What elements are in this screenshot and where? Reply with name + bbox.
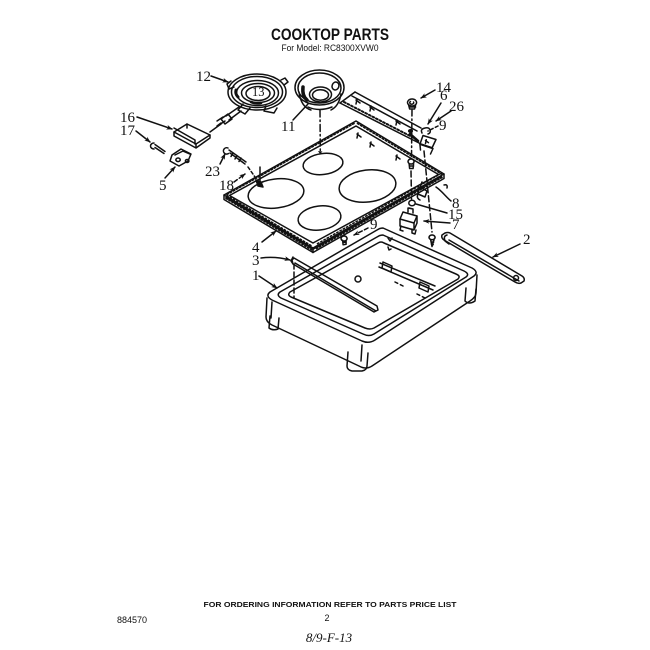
svg-text:12: 12 (196, 69, 211, 85)
svg-text:7: 7 (452, 217, 460, 233)
svg-text:6: 6 (440, 88, 448, 104)
svg-text:2: 2 (324, 613, 329, 623)
svg-text:884570: 884570 (117, 615, 147, 625)
svg-text:9: 9 (439, 118, 447, 134)
svg-text:For Model: RC8300XVW0: For Model: RC8300XVW0 (282, 43, 379, 53)
svg-text:8/9-F-13: 8/9-F-13 (306, 630, 353, 645)
svg-text:2: 2 (523, 232, 531, 248)
svg-text:13: 13 (252, 85, 265, 99)
svg-text:5: 5 (159, 178, 167, 194)
svg-text:11: 11 (281, 119, 295, 135)
svg-text:FOR ORDERING INFORMATION REFER: FOR ORDERING INFORMATION REFER TO PARTS … (204, 600, 457, 609)
svg-text:26: 26 (449, 99, 465, 115)
svg-text:23: 23 (205, 164, 220, 180)
svg-text:COOKTOP PARTS: COOKTOP PARTS (271, 26, 389, 44)
svg-text:3: 3 (252, 253, 260, 269)
svg-text:17: 17 (120, 123, 136, 139)
